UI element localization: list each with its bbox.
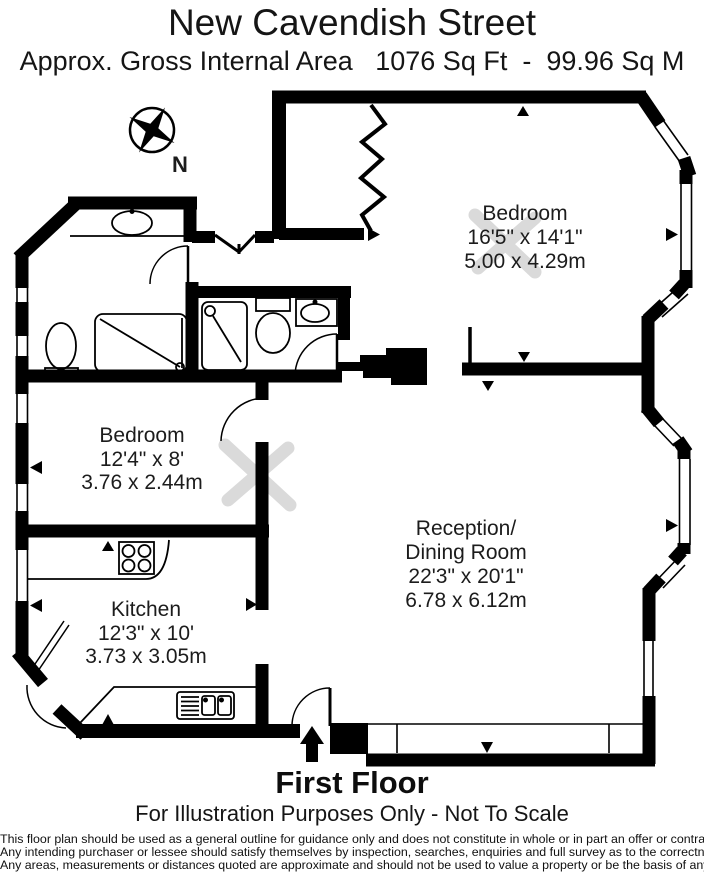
toilet	[46, 323, 76, 369]
compass-north-label: N	[172, 152, 188, 177]
footer: First Floor For Illustration Purposes On…	[0, 765, 704, 872]
room-label-kitchen-metric: 3.73 x 3.05m	[85, 645, 206, 668]
bathroom1-door-arc	[150, 246, 188, 284]
entrance-door-arc	[292, 688, 330, 726]
kitchen-corner-door-leaf	[33, 621, 69, 671]
disclaimer-line: Any areas, measurements or distances quo…	[0, 859, 704, 872]
double-door	[215, 235, 255, 254]
room-label-bedroom-main-imperial: 16'5" x 14'1"	[467, 226, 582, 249]
zigzag-wall	[361, 105, 385, 231]
entrance-arrow	[300, 726, 324, 762]
floor-plan: N	[0, 0, 704, 872]
room-label-kitchen-imperial: 12'3" x 10'	[98, 622, 194, 645]
entrance-step-wall	[330, 723, 368, 754]
room-label-bedroom-main-metric: 5.00 x 4.29m	[464, 250, 585, 273]
room-label-bedroom-second-imperial: 12'4" x 8'	[100, 448, 184, 471]
scale-note: For Illustration Purposes Only - Not To …	[0, 801, 704, 827]
room-label-bedroom-second-metric: 3.76 x 2.44m	[81, 471, 202, 494]
bathroom2-door-arc	[295, 334, 337, 375]
floor-label: First Floor	[0, 765, 704, 801]
room-label-reception-name2: Dining Room	[405, 541, 526, 564]
compass-icon	[130, 108, 175, 153]
room-label-bedroom-second-name: Bedroom	[99, 424, 184, 447]
bedroom2-door-arc	[221, 398, 265, 441]
toilet-cistern	[256, 298, 290, 311]
basin	[112, 211, 152, 235]
room-label-reception-metric: 6.78 x 6.12m	[405, 589, 526, 612]
room-label-kitchen-name: Kitchen	[111, 598, 181, 621]
toilet	[256, 313, 290, 353]
room-label-reception-imperial: 22'3" x 20'1"	[408, 565, 523, 588]
room-label-reception-name1: Reception/	[416, 517, 517, 540]
disclaimer: This floor plan should be used as a gene…	[0, 833, 704, 872]
room-label-bedroom-main-name: Bedroom	[482, 202, 567, 225]
steps	[338, 348, 427, 385]
